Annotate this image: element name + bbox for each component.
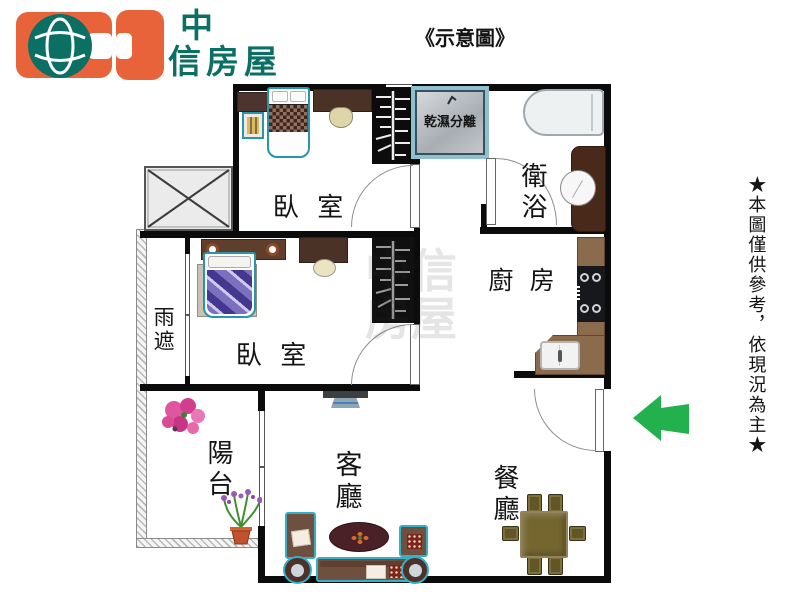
bedroom2-bed [203, 252, 256, 318]
bathroom-label: 衛浴 [514, 150, 550, 236]
elevator-shaft [144, 166, 233, 231]
bedroom1-lamp [247, 117, 259, 134]
wall-bedroom2-left-top [185, 238, 190, 254]
page: { "header": { "logo": { "line1": "中", "l… [0, 0, 800, 600]
floorplan: 乾濕分離 [0, 0, 800, 600]
bedroom2-label: 臥 室 [226, 340, 322, 372]
dining-table [520, 511, 568, 558]
bedroom1-headboard-shelf [237, 92, 268, 112]
bathtub-line [591, 94, 593, 131]
wall-living-left-top [258, 389, 265, 411]
bedroom2-chair [313, 259, 336, 277]
bedroom1-door-arc [351, 165, 413, 227]
rain-shelter-label: 雨遮 [148, 293, 178, 367]
living-label: 客廳 [327, 436, 365, 528]
stove-burner [580, 304, 589, 313]
dining-label: 餐廳 [486, 452, 522, 538]
stove-knobs [577, 286, 580, 302]
sofa-pillow-white [366, 565, 386, 579]
kitchen-label: 廚 房 [483, 266, 565, 298]
balcony-label: 陽台 [200, 428, 236, 512]
tv-stand [331, 398, 360, 408]
bedroom1-label: 臥 室 [263, 192, 359, 224]
tv-wall-mount [323, 391, 368, 398]
entry-door-arc [534, 389, 596, 451]
side-table-top [291, 564, 304, 577]
armchair-left-pillow [291, 529, 311, 547]
bedroom2-duvet [207, 270, 252, 314]
bedroom1-pillow-2 [290, 91, 306, 102]
rug-flower-icon [350, 531, 370, 545]
armchair-left [285, 512, 316, 559]
side-table-right [401, 556, 429, 584]
shower-label: 乾濕分離 [433, 115, 467, 130]
bathroom-sink [560, 170, 596, 206]
bedroom1-chair [329, 107, 353, 128]
bedroom1-bed [267, 87, 310, 158]
dining-chair [569, 526, 586, 541]
elevator-x-icon [146, 168, 231, 229]
side-table-top [409, 564, 422, 577]
bathroom-door-leaf [486, 158, 496, 225]
dining-chair [527, 556, 542, 575]
wall-divider-living [140, 384, 420, 391]
window-bedroom2-tick [185, 314, 190, 316]
kitchen-sink [540, 341, 580, 370]
shower-head-icon [445, 94, 459, 105]
wall-right-lower [604, 451, 611, 583]
shower-enclosure: 乾濕分離 [411, 86, 489, 159]
dining-chair [548, 556, 563, 575]
kitchen-faucet [558, 350, 562, 362]
window-balcony-tick [259, 466, 265, 468]
armchair-right-pillow [407, 534, 422, 549]
bathtub [523, 89, 604, 136]
bedroom1-duvet [269, 104, 308, 132]
wall-right-upper [604, 84, 611, 389]
wall-mid-stub [414, 227, 420, 240]
side-table-left [283, 556, 312, 584]
bedroom1-pillow-1 [272, 91, 288, 102]
kitchen-stove [577, 266, 605, 322]
bedroom2-pillow [208, 256, 251, 268]
stove-burner [592, 273, 601, 282]
entry-door-leaf [595, 389, 604, 452]
bedroom1-wardrobe [372, 87, 414, 164]
wardrobe-hangers-icon [372, 87, 414, 164]
watermark: 中信房屋 [365, 248, 467, 345]
armchair-right [399, 525, 428, 557]
stove-burner [592, 304, 601, 313]
bathroom-sink-line [572, 180, 583, 198]
stove-burner [580, 273, 589, 282]
wall-bottom [260, 576, 611, 583]
bedroom1-nightstand [242, 112, 264, 139]
bedroom2-lamp-right [266, 243, 279, 256]
